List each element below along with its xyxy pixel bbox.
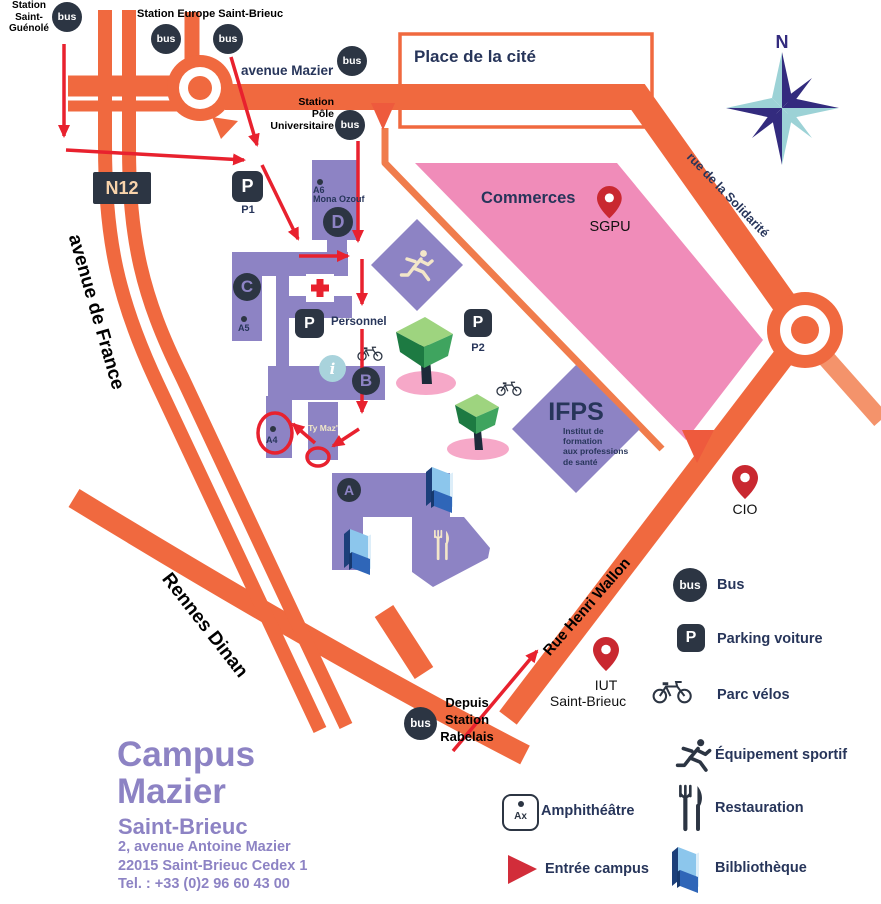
ifps-label: IFPS [540, 398, 612, 427]
cio-label: CIO [725, 501, 765, 517]
bike-icon [497, 382, 521, 395]
entree-campus-icon [508, 855, 537, 884]
parking-p2-icon: P [464, 309, 492, 337]
first-aid-icon [306, 274, 334, 302]
sgpu-label: SGPU [585, 219, 635, 236]
place-de-la-cite-label: Place de la cité [414, 47, 536, 67]
bus-stop-icon: bus [335, 110, 365, 140]
legend-amphi-label: Amphithéâtre [541, 803, 634, 820]
iut-pin-icon [593, 637, 619, 671]
bike-icon [654, 682, 691, 702]
avenue-mazier-label: avenue Mazier [241, 63, 333, 79]
ty-maz-label: Ty Maz' [306, 424, 340, 434]
bus-stop-icon: bus [213, 24, 243, 54]
roundabout-solidarite [767, 292, 843, 368]
amphi-a6-name-label: Mona Ozouf [313, 194, 365, 204]
amphi-dot-icon [270, 426, 276, 432]
legend-amphi-icon: Ax [502, 794, 539, 831]
campus-entrance-north-icon [371, 103, 395, 130]
station-europe-label: Station Europe Saint-Brieuc [137, 8, 283, 21]
library-icon [672, 847, 699, 893]
station-pole-universitaire-label: Station Pôle Universitaire [270, 96, 334, 132]
bus-stop-icon: bus [151, 24, 181, 54]
building-c-badge: C [233, 273, 261, 301]
legend-sport-label: Équipement sportif [715, 747, 847, 764]
compass-rose-icon [726, 52, 839, 165]
bus-stop-icon: bus [337, 46, 367, 76]
parking-personnel-label: Personnel [331, 316, 387, 329]
campus-subtitle: Saint-Brieuc [118, 814, 248, 839]
amphi-a4-label: A4 [266, 435, 278, 445]
cio-pin-icon [732, 465, 758, 499]
amphi-a5-label: A5 [238, 323, 250, 333]
amphi-dot-icon [241, 316, 247, 322]
legend-library-label: Bilbliothèque [715, 860, 807, 877]
campus-address: 2, avenue Antoine Mazier 22015 Saint-Bri… [118, 838, 307, 894]
legend-bus-icon: bus [673, 568, 707, 602]
legend-bike-label: Parc vélos [717, 687, 790, 704]
parking-p1-label: P1 [233, 204, 263, 217]
building-b-badge: B [352, 367, 380, 395]
station-saint-guenole-label: Station Saint- Guénolé [0, 0, 58, 35]
sport-icon [678, 739, 710, 770]
depuis-station-rabelais-label: Depuis Station Rabelais [430, 694, 504, 745]
compass-north-label: N [770, 32, 794, 53]
legend-bus-label: Bus [717, 577, 744, 594]
iut-city-label: Saint-Brieuc [538, 693, 638, 709]
legend-restaurant-label: Restauration [715, 800, 804, 817]
campus-map: Station Saint- Guénolé Station Europe Sa… [0, 0, 881, 904]
campus-title: Campus Mazier [117, 736, 255, 811]
building-d-badge: D [323, 207, 353, 237]
building-a-badge: A [337, 478, 361, 502]
legend-entree-label: Entrée campus [545, 861, 649, 878]
ifps-subtitle: Institut de formation aux professions de… [563, 426, 628, 467]
legend-parking-label: Parking voiture [717, 631, 823, 648]
parking-p2-label: P2 [463, 342, 493, 355]
iut-label: IUT [580, 677, 632, 693]
bus-stop-icon: bus [404, 707, 437, 740]
roundabout-europe [167, 55, 238, 139]
bus-stop-icon: bus [52, 2, 82, 32]
restaurant-icon [680, 786, 702, 829]
parking-personnel-icon: P [295, 309, 324, 338]
parking-p1-icon: P [232, 171, 263, 202]
legend-parking-icon: P [677, 624, 705, 652]
commerces-label: Commerces [481, 189, 575, 208]
n12-road-badge: N12 [93, 172, 151, 204]
info-icon: i [319, 355, 346, 382]
